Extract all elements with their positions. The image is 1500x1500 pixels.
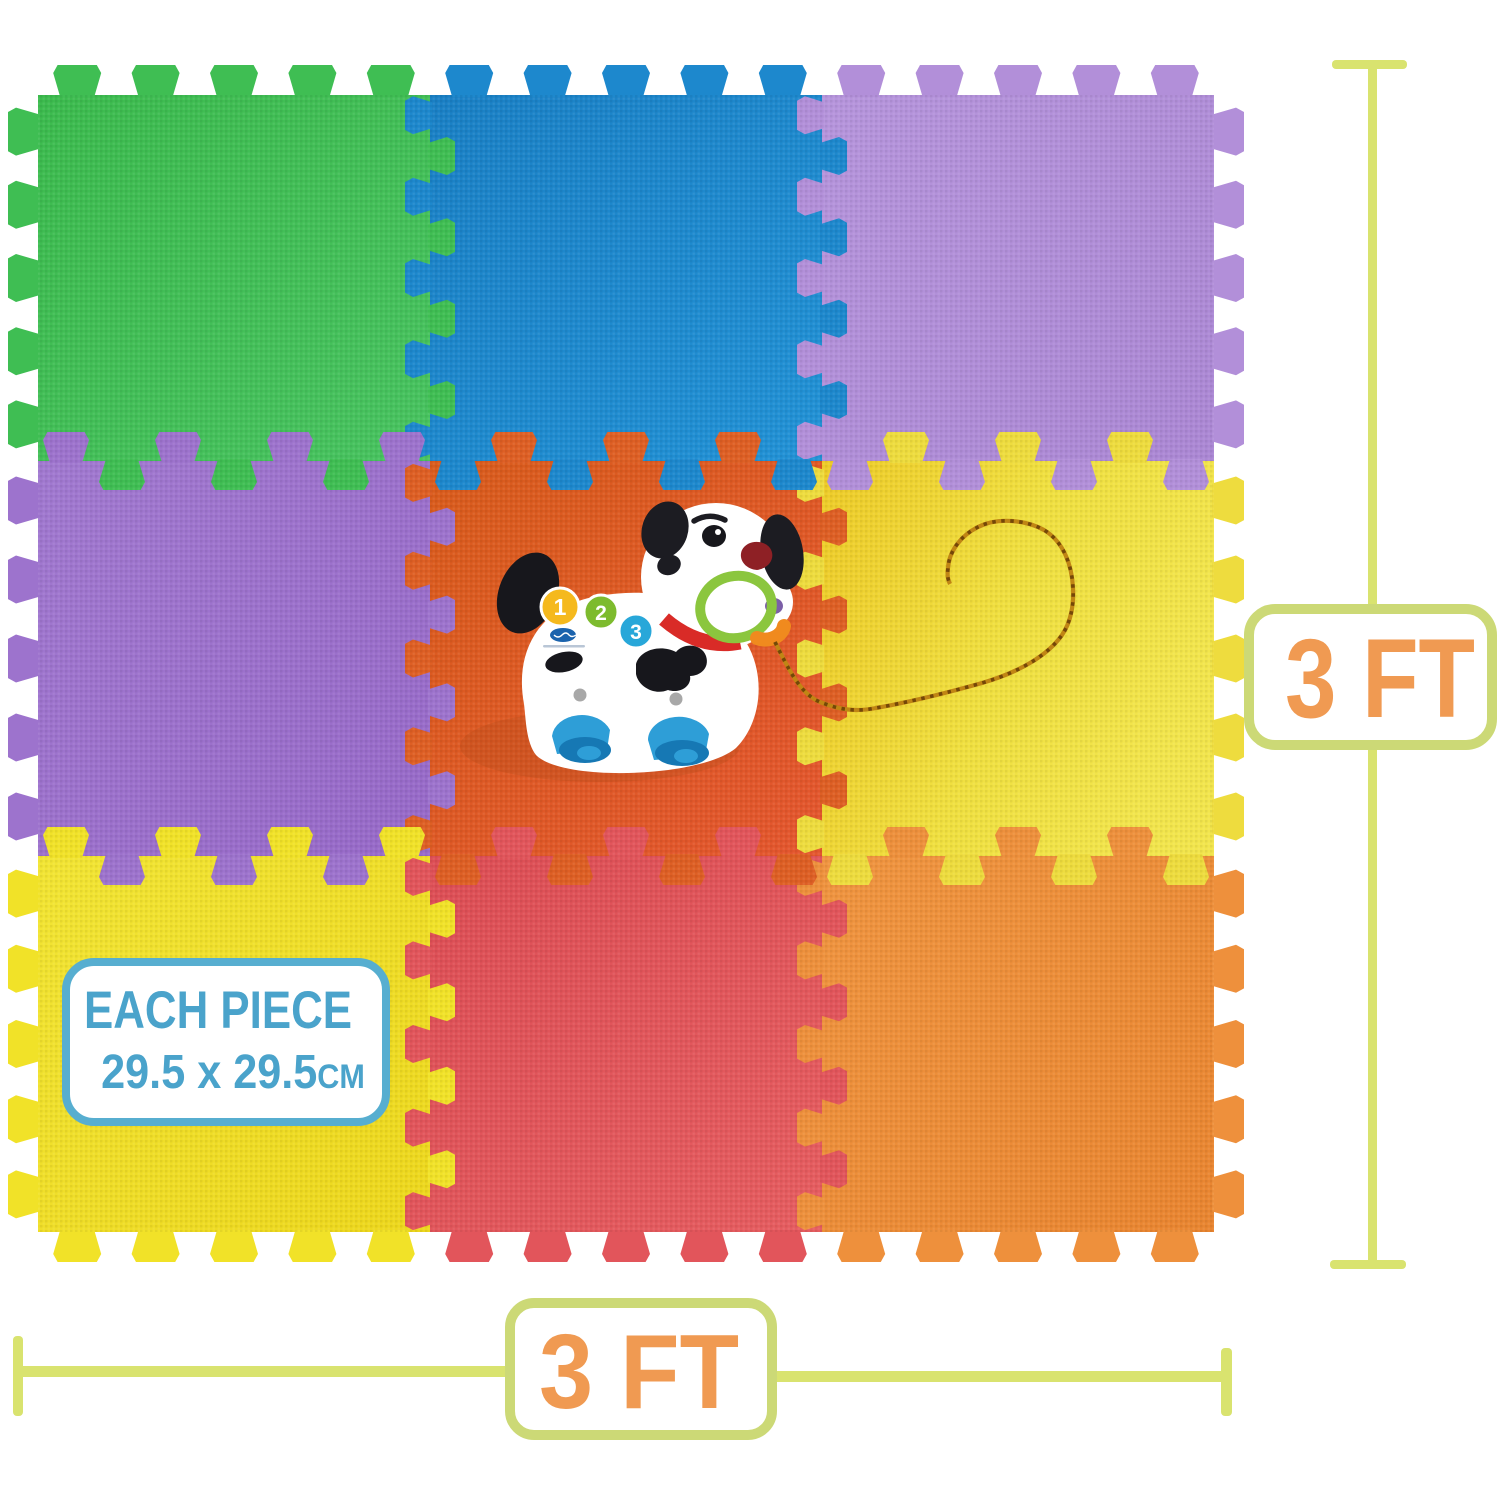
svg-text:2: 2 bbox=[595, 602, 607, 625]
svg-text:3: 3 bbox=[630, 621, 642, 644]
svg-text:3 FT: 3 FT bbox=[1285, 616, 1475, 741]
svg-text:EACH PIECE: EACH PIECE bbox=[84, 981, 352, 1040]
svg-text:1: 1 bbox=[554, 594, 567, 620]
svg-text:3 FT: 3 FT bbox=[539, 1313, 739, 1431]
